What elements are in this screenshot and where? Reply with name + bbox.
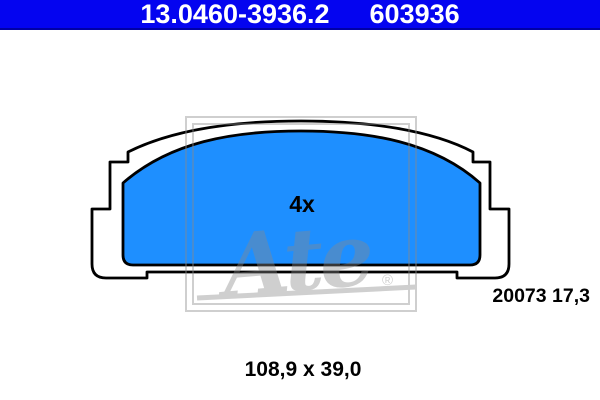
ate-logo-text: Ate xyxy=(211,204,375,318)
quantity-label: 4x xyxy=(252,191,352,218)
registered-mark-icon: ® xyxy=(382,272,393,289)
dimensions-label: 108,9 x 39,0 xyxy=(3,358,600,382)
batch-label: 20073 17,3 xyxy=(492,285,590,308)
